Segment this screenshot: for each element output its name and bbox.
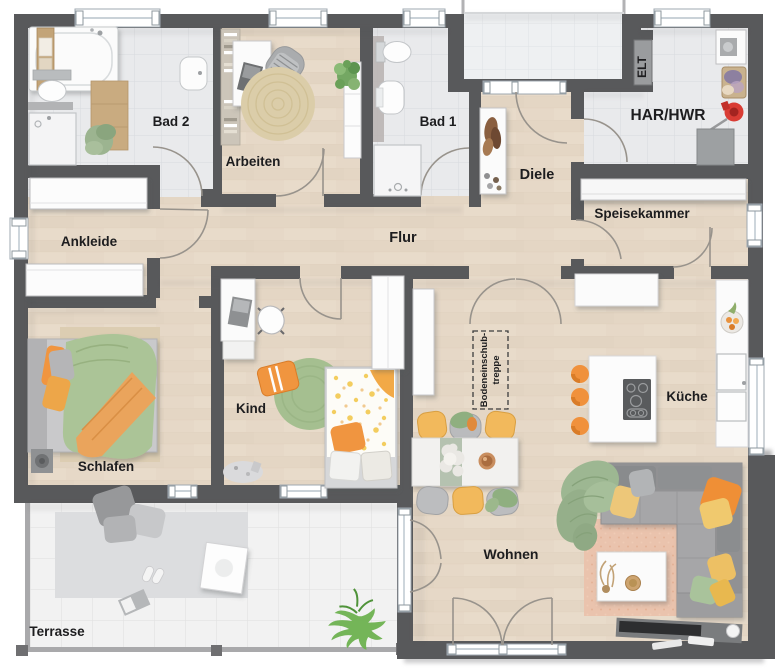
svg-text:Speisekammer: Speisekammer — [594, 206, 690, 221]
svg-text:HAR/HWR: HAR/HWR — [631, 107, 706, 124]
svg-text:Arbeiten: Arbeiten — [226, 154, 281, 169]
svg-text:ELT: ELT — [635, 55, 649, 77]
svg-text:Bad 1: Bad 1 — [420, 114, 457, 129]
svg-text:treppe: treppe — [491, 355, 502, 384]
svg-text:Küche: Küche — [666, 389, 708, 404]
svg-text:Wohnen: Wohnen — [484, 546, 539, 562]
svg-text:Bad 2: Bad 2 — [153, 114, 190, 129]
svg-text:Diele: Diele — [520, 167, 555, 183]
svg-text:Ankleide: Ankleide — [61, 234, 118, 249]
svg-text:Bodeneinschub-: Bodeneinschub- — [479, 333, 490, 407]
svg-text:Flur: Flur — [389, 230, 417, 246]
svg-text:Kind: Kind — [236, 401, 266, 416]
svg-text:Terrasse: Terrasse — [29, 624, 85, 639]
svg-text:Schlafen: Schlafen — [78, 459, 134, 474]
